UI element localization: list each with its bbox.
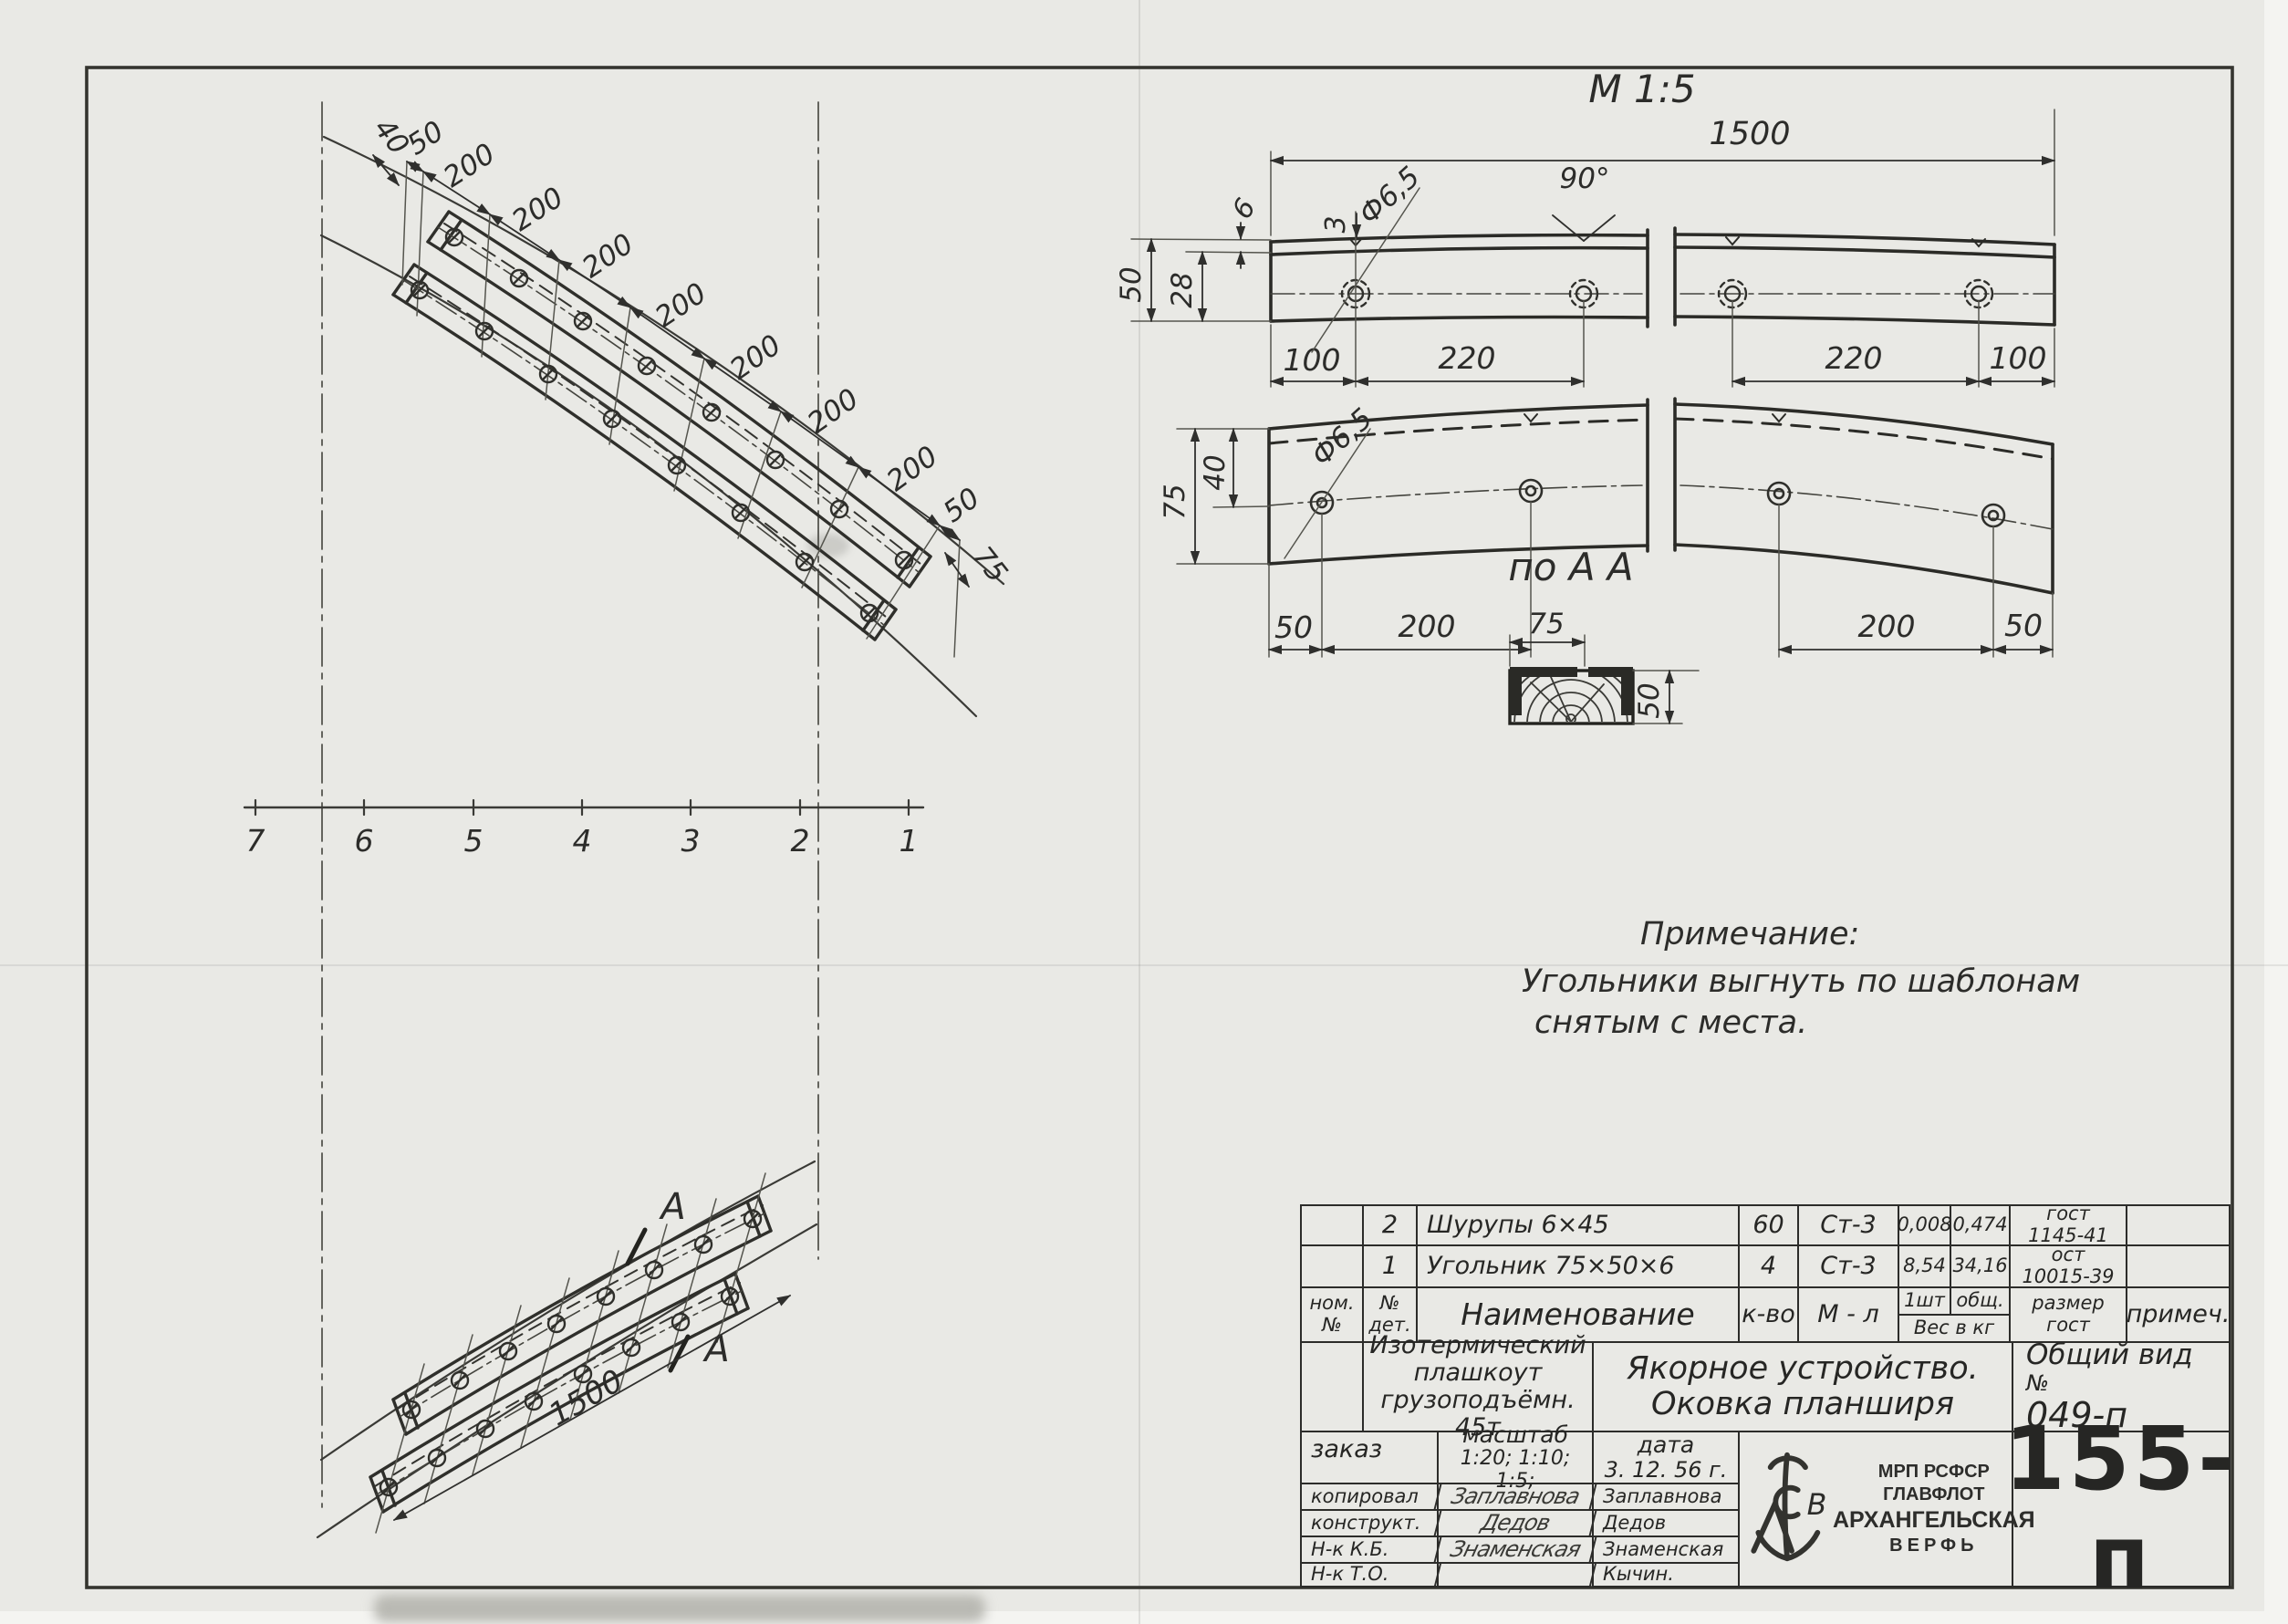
name-head-kb: Знаменская [1592, 1536, 1740, 1564]
view-label: Общий вид [2026, 1339, 2193, 1371]
dim-label: 200 [802, 382, 865, 440]
station-label: 3 [681, 823, 701, 859]
hdr-line: гост [2046, 1315, 2090, 1337]
section-dim-h: 50 [1633, 682, 1666, 718]
scale-label: M 1:5 [1588, 67, 1695, 111]
parts-standard: ост 10015-39 [2009, 1244, 2127, 1288]
plan-view-rail-aft: А А 1500 [317, 1161, 816, 1537]
name-head-to: Кычин. [1592, 1562, 1740, 1588]
dim: 220 [1825, 340, 1883, 376]
parts-standard: гост 1145-41 [2009, 1204, 2127, 1246]
dim: 200 [1858, 609, 1916, 644]
dim: 100 [1990, 340, 2047, 376]
hdr-line: размер [2032, 1293, 2104, 1315]
dim-label-75: 75 [966, 540, 1014, 588]
project-name: Изотермический плашкоут грузоподъёмн. 45… [1362, 1341, 1594, 1432]
shipyard-stamp: В МРП РСФСР ГЛАВФЛОТ АРХАНГЕЛЬСКАЯ ВЕРФЬ [1738, 1431, 2013, 1588]
std-line1: ост [2052, 1244, 2085, 1266]
station-label: 7 [246, 823, 265, 859]
parts-detail-no: 2 [1362, 1204, 1418, 1246]
hdr-line: № [1322, 1315, 1342, 1337]
no-label: № [2026, 1371, 2049, 1396]
title-line1: Якорное устройство. [1627, 1351, 1979, 1387]
dim: 220 [1439, 340, 1496, 376]
project-line: Изотермический [1369, 1332, 1586, 1359]
role-head-to: Н-к Т.О. [1300, 1562, 1439, 1588]
parts-qty: 4 [1738, 1244, 1799, 1288]
section-dim-w: 75 [1528, 608, 1564, 640]
parts-material: Ст-3 [1797, 1244, 1899, 1288]
screws-strip2 [411, 282, 878, 621]
section-a-a: по А А 75 50 [1503, 545, 1699, 724]
station-label: 4 [573, 823, 592, 859]
signature: Дедов [1433, 1509, 1597, 1537]
date-label: дата [1638, 1432, 1695, 1458]
dim-50: 50 [1115, 266, 1148, 302]
station-label: 6 [355, 823, 374, 859]
parts-material: Ст-3 [1797, 1204, 1899, 1246]
parts-name: Шурупы 6×45 [1416, 1204, 1740, 1246]
dim-label: 200 [438, 137, 501, 193]
std-line2: 10015-39 [2022, 1266, 2114, 1288]
dim-28: 28 [1166, 272, 1199, 307]
dim-1500: 1500 [1709, 116, 1790, 152]
hdr-material: М - л [1797, 1286, 1899, 1343]
parts-cell-empty [1300, 1204, 1364, 1246]
hdr-line: № [1380, 1293, 1400, 1315]
section-mark-a2: А [702, 1328, 729, 1370]
angle-90: 90° [1560, 162, 1610, 195]
name-designer: Дедов [1592, 1509, 1740, 1537]
parts-qty: 60 [1738, 1204, 1799, 1246]
parts-cell-empty [1300, 1244, 1364, 1288]
parts-weight-total: 0,474 [1950, 1204, 2011, 1246]
dim-label: 200 [577, 227, 640, 285]
dim-label: 50 [938, 482, 986, 529]
title-empty [1300, 1341, 1364, 1432]
station-ruler: 7 6 5 4 3 2 1 [244, 800, 923, 859]
dim-3: 3 [1320, 215, 1352, 233]
svg-text:В: В [1807, 1489, 1827, 1522]
dia-label-top: Ф6,5 [1353, 161, 1427, 232]
hdr-weight-one: 1шт [1898, 1286, 1951, 1316]
parts-remark [2126, 1204, 2231, 1246]
drawing-title: Якорное устройство. Оковка планширя [1592, 1341, 2013, 1432]
hdr-weight: Вес в кг [1898, 1314, 2011, 1343]
title-block: 2 Шурупы 6×45 60 Ст-3 0,008 0,474 гост 1… [1300, 1204, 2231, 1588]
parts-weight-total: 34,16 [1950, 1244, 2011, 1288]
dim-40: 40 [1199, 454, 1232, 490]
hdr-remark: примеч. [2126, 1286, 2231, 1343]
dim: 50 [1274, 609, 1313, 645]
hdr-line: ном. [1309, 1293, 1354, 1315]
blueprint-sheet: { "top_left": { "dim40": "40", "chain": … [0, 0, 2288, 1624]
anchor-logo-icon: В [1742, 1436, 1833, 1582]
dim: 100 [1284, 342, 1341, 378]
parts-remark [2126, 1244, 2231, 1288]
drawing-number: 155-п [2012, 1431, 2231, 1588]
hdr-standard: размергост [2009, 1286, 2127, 1343]
note-title: Примечание: [1640, 916, 1859, 953]
station-label: 1 [900, 823, 919, 859]
note-line1: Угольники выгнуть по шаблонам [1522, 963, 2080, 1000]
section-title: по А А [1508, 545, 1633, 589]
dim-label: 200 [724, 328, 787, 386]
hdr-qty: к-во [1738, 1286, 1799, 1343]
parts-weight-one: 8,54 [1898, 1244, 1951, 1288]
title-line2: Оковка планширя [1651, 1387, 1954, 1422]
role-designer: конструкт. [1300, 1509, 1439, 1537]
dim-label: 50 [401, 115, 450, 162]
signature: Знаменская [1433, 1536, 1597, 1564]
note-block: Примечание: Угольники выгнуть по шаблона… [1522, 916, 2080, 1041]
parts-weight-one: 0,008 [1898, 1204, 1951, 1246]
role-head-kb: Н-к К.Б. [1300, 1536, 1439, 1564]
date-value: 3. 12. 56 г. [1605, 1458, 1728, 1483]
dim-6: 6 [1226, 193, 1263, 225]
signature [1434, 1562, 1597, 1588]
dim-label: 200 [506, 181, 569, 237]
parts-name: Угольник 75×50×6 [1416, 1244, 1740, 1288]
parts-detail-no: 1 [1362, 1244, 1418, 1288]
date-cell: дата 3. 12. 56 г. [1592, 1431, 1740, 1484]
role-copied: копировал [1300, 1483, 1439, 1511]
dim-label: 200 [650, 276, 712, 334]
project-line: плашкоут [1414, 1359, 1543, 1387]
name-copied: Заплавнова [1592, 1483, 1740, 1511]
dim-1500-aft: 1500 [543, 1363, 629, 1434]
station-label: 2 [791, 823, 810, 859]
scale-cell: масштаб 1:20; 1:10; 1:5; [1437, 1431, 1594, 1484]
dim: 200 [1399, 609, 1456, 644]
hdr-weight-total: общ. [1950, 1286, 2011, 1316]
station-label: 5 [464, 823, 484, 859]
order-cell: заказ [1300, 1431, 1439, 1484]
section-mark-a1: А [658, 1186, 685, 1228]
scale-label: масштаб [1462, 1422, 1568, 1448]
hdr-item-no: ном.№ [1300, 1286, 1364, 1343]
dim-75: 75 [1159, 484, 1191, 519]
signature: Заплавнова [1433, 1483, 1597, 1511]
std-line1: гост [2046, 1203, 2090, 1225]
dia-label-bot: Ф6,5 [1305, 402, 1379, 474]
note-line2: снятым с места. [1534, 1005, 1807, 1041]
plan-view-curved-rail: 40 50 200 200 200 200 200 200 200 50 75 [321, 112, 1014, 716]
dim: 50 [2004, 608, 2043, 643]
